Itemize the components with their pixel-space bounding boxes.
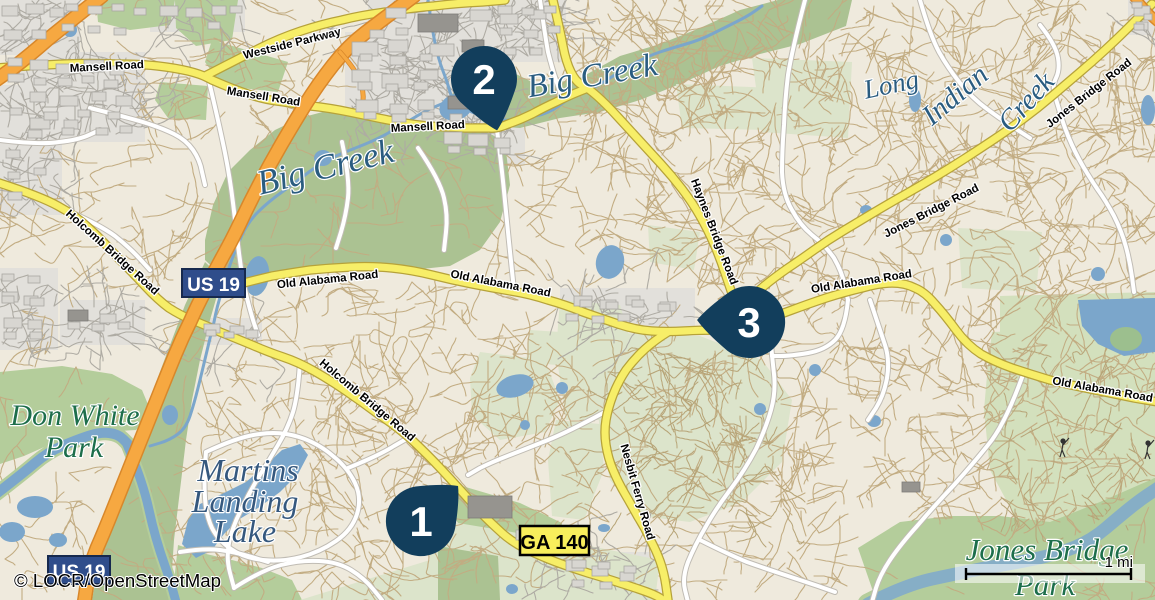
svg-text:GA 140: GA 140 <box>520 532 588 554</box>
svg-text:© LOCR/OpenStreetMap: © LOCR/OpenStreetMap <box>14 570 221 591</box>
svg-text:2: 2 <box>472 56 495 103</box>
svg-text:3: 3 <box>737 299 760 346</box>
svg-text:1 mi: 1 mi <box>1105 554 1133 571</box>
svg-text:Lake: Lake <box>213 513 276 549</box>
svg-text:Park: Park <box>44 431 104 464</box>
svg-text:1: 1 <box>409 498 432 545</box>
svg-text:US 19: US 19 <box>187 275 240 296</box>
svg-text:Don White: Don White <box>9 399 139 432</box>
